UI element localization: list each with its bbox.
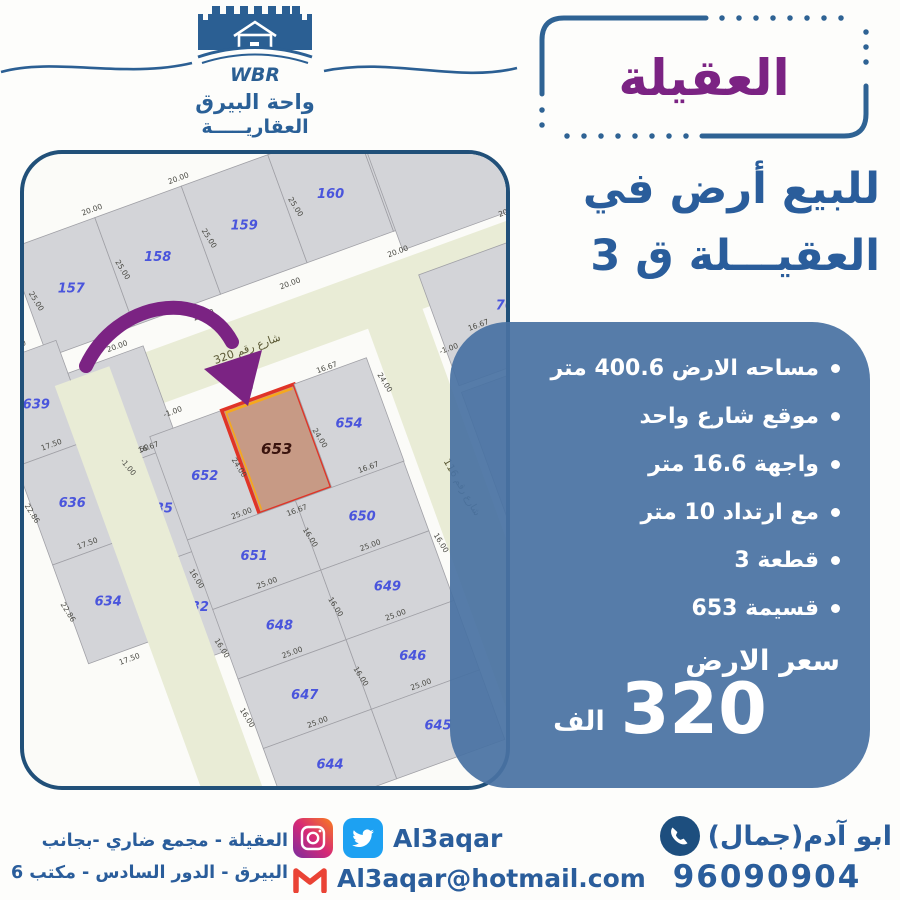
plot-number-651: 651 [241, 549, 268, 564]
plot-number-159: 159 [231, 218, 258, 233]
plot-number-160: 160 [317, 187, 344, 202]
price-unit: الف [553, 706, 605, 737]
bullet-icon [831, 508, 840, 517]
plot-number-158: 158 [144, 250, 171, 265]
plot-number-157: 157 [58, 281, 86, 296]
brand-name-line2: العقاريـــــة [140, 116, 370, 138]
address-line1: العقيلة - مجمع ضاري -بجانب [10, 826, 288, 858]
plot-number-636: 636 [59, 496, 86, 511]
plot-number-647: 647 [291, 688, 319, 703]
plot-number-639: 639 [24, 397, 50, 412]
plot-map: 15715815916016120.0020.0020.0020.0020.00… [24, 154, 506, 786]
detail-item-frontage: واجهة 16.6 متر [480, 452, 840, 477]
gmail-icon[interactable] [293, 865, 327, 893]
wbr-logo-text: WBR [230, 64, 280, 86]
plot-number-650: 650 [349, 510, 376, 525]
dimension-label: 20.00 [80, 202, 103, 218]
headline-line1: للبيع أرض في [500, 156, 880, 223]
plot-number-644: 644 [316, 758, 343, 773]
headline-line2: العقيـــلة ق 3 [500, 223, 880, 290]
contact-name: ابو آدم(جمال) [708, 821, 892, 852]
detail-item-area: مساحه الارض 400.6 متر [480, 356, 840, 381]
detail-item-block: قطعة 3 [480, 548, 840, 573]
castle-logo-icon: WBR [196, 2, 314, 86]
price-value: 320 [621, 671, 767, 747]
dimension-label: 20.00 [278, 275, 301, 291]
dimension-label: 20.00 [167, 170, 190, 186]
brand-name-line1: واحة البيرق [140, 90, 370, 114]
phone-icon [658, 814, 702, 858]
instagram-icon[interactable] [293, 818, 333, 858]
bullet-icon [831, 460, 840, 469]
plot-number-767: 767 [496, 299, 506, 314]
phone-number[interactable]: 96090904 [612, 859, 892, 895]
detail-item-parcel: قسيمة 653 [480, 596, 840, 621]
plot-number-649: 649 [374, 579, 401, 594]
area-title-box: العقيلة [538, 14, 870, 142]
price: 320 الف [480, 671, 840, 747]
social-handle[interactable]: Al3aqar [393, 824, 502, 853]
plot-number-634: 634 [95, 595, 122, 610]
bullet-icon [831, 556, 840, 565]
brand-logo: WBR واحة البيرق العقاريـــــة [140, 2, 370, 138]
bullet-icon [831, 364, 840, 373]
plot-number-645: 645 [425, 718, 452, 733]
area-title: العقيلة [538, 14, 870, 142]
email-address[interactable]: Al3aqar@hotmail.com [337, 864, 646, 893]
contact-block: ابو آدم(جمال) 96090904 [612, 814, 892, 895]
dimension-label: 20.00 [386, 243, 409, 259]
plot-number-648: 648 [266, 619, 293, 634]
plot-number-652: 652 [191, 469, 218, 484]
plot-number-653: 653 [261, 440, 292, 458]
address-line2: البيرق - الدور السادس - مكتب 6 [10, 858, 288, 890]
bullet-icon [831, 604, 840, 613]
detail-item-location: موقع شارع واحد [480, 404, 840, 429]
plot-number-646: 646 [399, 649, 426, 664]
bullet-icon [831, 412, 840, 421]
listing-headline: للبيع أرض في العقيـــلة ق 3 [500, 156, 880, 290]
plot-number-654: 654 [335, 417, 362, 432]
social-links: Al3aqar Al3aqar@hotmail.com [293, 818, 623, 893]
detail-item-setback: مع ارتداد 10 متر [480, 500, 840, 525]
office-address: العقيلة - مجمع ضاري -بجانب البيرق - الدو… [10, 826, 288, 889]
twitter-icon[interactable] [343, 818, 383, 858]
listing-details-panel: مساحه الارض 400.6 متر موقع شارع واحد واج… [450, 322, 870, 788]
dimension-label: 17.50 [118, 651, 141, 667]
plot-map-panel: 15715815916016120.0020.0020.0020.0020.00… [20, 150, 510, 790]
